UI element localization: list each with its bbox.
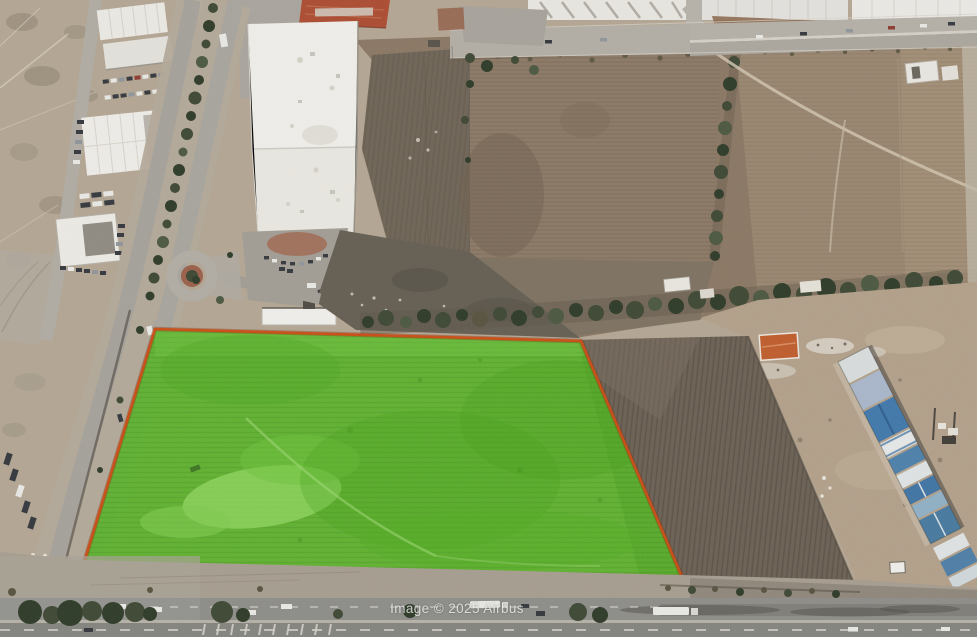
satellite-map-view[interactable]: Image © 2025 Airbus: [0, 0, 977, 637]
image-grain-overlay: [0, 0, 977, 637]
aerial-imagery: [0, 0, 977, 637]
